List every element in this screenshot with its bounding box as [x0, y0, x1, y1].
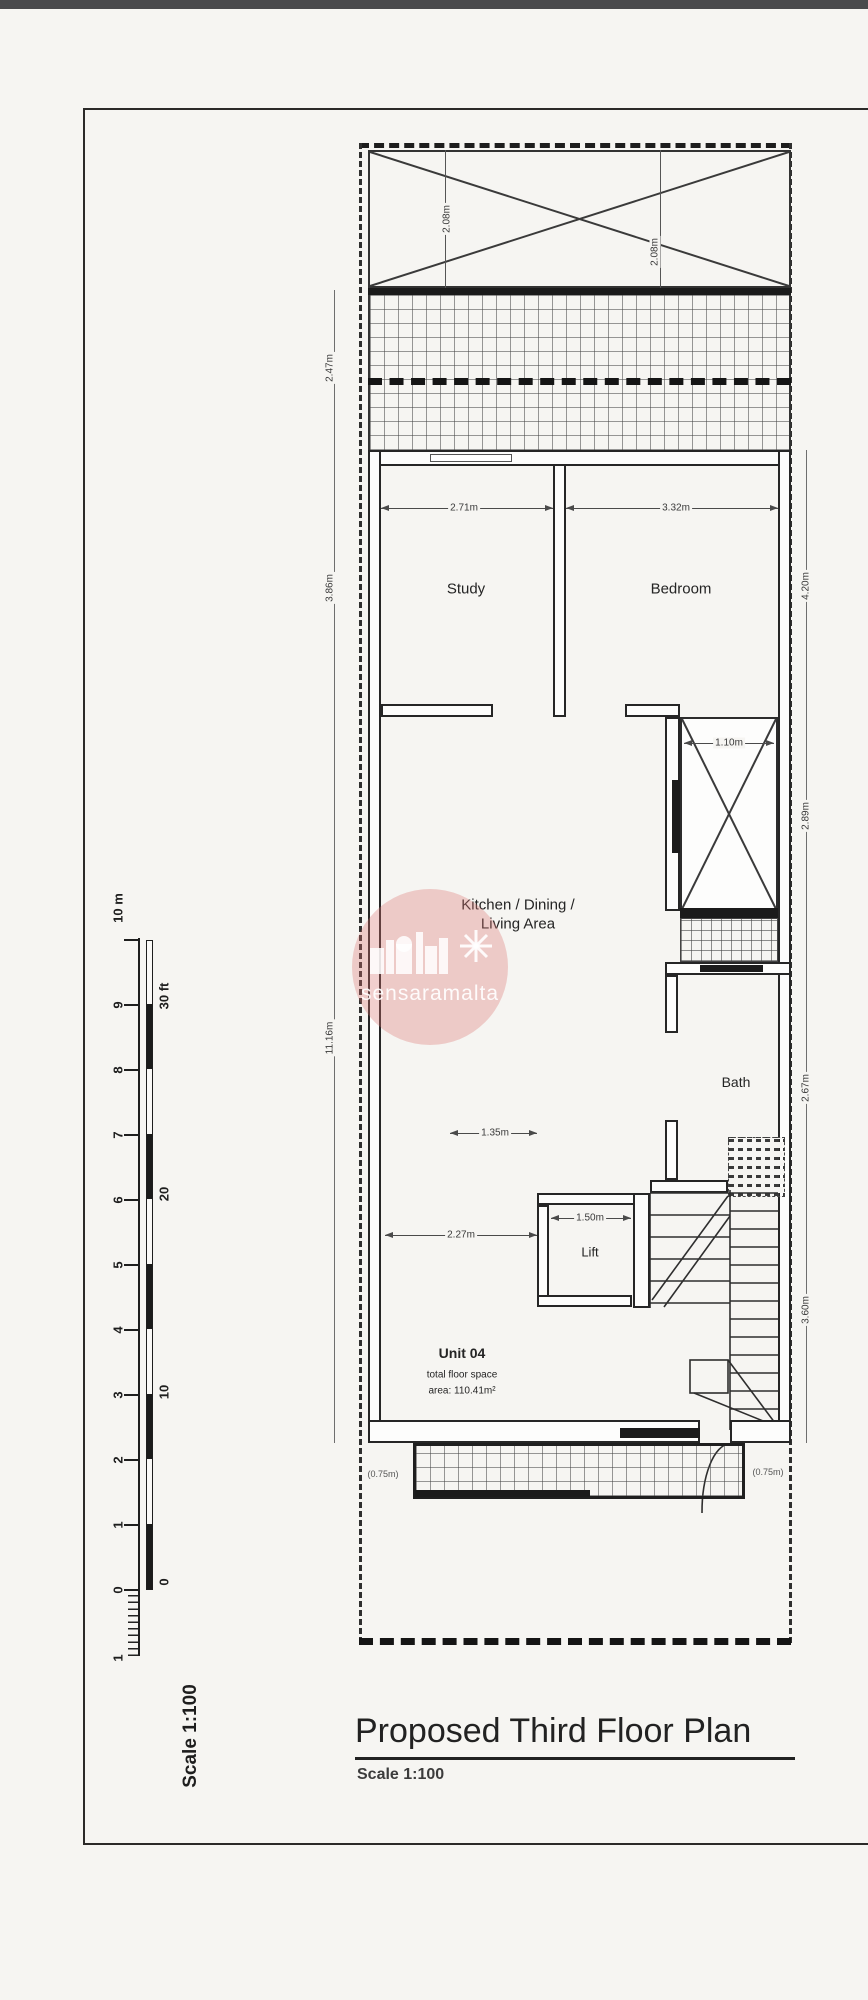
balcony-dim-left: (0.75m): [365, 1469, 400, 1479]
scalebar-number: 1: [111, 1521, 126, 1528]
wall-study-bedroom-divider: [553, 464, 566, 717]
terrace-dashed-line: [368, 378, 791, 385]
scalebar-alt-bar: [146, 940, 153, 1590]
shaft-bottom-bar: [680, 908, 778, 918]
wall-bedroom-bottom: [625, 704, 680, 717]
unit-floor-space-label: total floor space: [427, 1370, 498, 1381]
scalebar-tick: [124, 1264, 138, 1266]
wall-front-bottom-right: [730, 1420, 791, 1443]
study-dim: 2.71m: [448, 503, 480, 514]
upper-terrace-tiles: [368, 295, 791, 450]
sheet-title: Proposed Third Floor Plan: [355, 1712, 805, 1751]
right-stairs-dim: 3.60m: [801, 1294, 812, 1326]
frame-left: [83, 108, 85, 1845]
scalebar-comb: [128, 1590, 138, 1656]
lift-dim: 1.50m: [574, 1213, 606, 1224]
scalebar-meters-label: 10 m: [111, 893, 126, 923]
title-underline: [355, 1757, 795, 1760]
site-boundary-bottom: [359, 1638, 791, 1645]
wall-lift-right: [633, 1193, 650, 1308]
scalebar-tick: [124, 1199, 138, 1201]
scalebar-tick: [124, 1459, 138, 1461]
right-shaft-dim: 2.89m: [801, 800, 812, 832]
scalebar-ft-label: 10: [157, 1385, 172, 1399]
balcony-front-edge: [415, 1490, 590, 1497]
wall-bath-left-lower: [665, 1120, 678, 1180]
left-study-dim: 3.86m: [325, 572, 336, 604]
scalebar-ft-label: 20: [157, 1187, 172, 1201]
scalebar-tick: [124, 1329, 138, 1331]
bedroom-dim: 3.32m: [660, 503, 692, 514]
photo-top-strip: [0, 0, 868, 9]
frame-bottom: [83, 1843, 868, 1845]
bath-window-bar: [700, 965, 763, 972]
scalebar-number: 2: [111, 1456, 126, 1463]
wall-right: [778, 450, 791, 1443]
scalebar-tick: [124, 1069, 138, 1071]
room-label-bedroom: Bedroom: [651, 581, 712, 598]
unit-name: Unit 04: [439, 1345, 486, 1361]
rear-window-bar: [620, 1428, 700, 1438]
shaft-door-panel: [672, 780, 680, 853]
scalebar-number: 0: [111, 1586, 126, 1593]
balcony-dim-right: (0.75m): [750, 1467, 785, 1477]
watermark-skyline-icon: [368, 918, 498, 974]
wall-lift-bottom: [537, 1295, 632, 1307]
room-label-study: Study: [447, 581, 485, 598]
scalebar-tick: [124, 1524, 138, 1526]
room-label-lift: Lift: [581, 1245, 598, 1260]
shower-hatch: [728, 1137, 785, 1197]
scalebar-number: 3: [111, 1391, 126, 1398]
roof-dim-left: 2.08m: [442, 203, 453, 235]
staircase: [650, 1190, 778, 1430]
scalebar-tick: [124, 1004, 138, 1006]
wall-lift-left: [537, 1205, 549, 1297]
right-bedroom-dim: 4.20m: [801, 570, 812, 602]
left-kitchen-dim: 11.16m: [325, 1020, 336, 1057]
scalebar-number: 1: [111, 1654, 126, 1661]
scalebar-rotated-title: Scale 1:100: [180, 1684, 202, 1788]
left-terrace-dim: 2.47m: [325, 352, 336, 384]
sheet-scale: Scale 1:100: [357, 1766, 444, 1784]
wall-study-bottom: [381, 704, 493, 717]
scalebar-number: 4: [111, 1326, 126, 1333]
right-bath-dim: 2.67m: [801, 1072, 812, 1104]
room-label-bath: Bath: [722, 1074, 751, 1090]
scalebar-main-line: [138, 938, 140, 1656]
front-window: [430, 454, 512, 462]
roof-dim-right: 2.08m: [650, 236, 661, 268]
terrace-edge-bar: [368, 288, 791, 295]
shaft-hatch-strip: [680, 918, 778, 962]
scalebar-tick: [124, 1134, 138, 1136]
floor-plan-sheet: 2.08m 2.08m 1.10m: [0, 0, 868, 2000]
scalebar-number: 8: [111, 1066, 126, 1073]
roof-void-cross: [368, 150, 791, 288]
scalebar-number: 9: [111, 1001, 126, 1008]
wall-bath-left-upper: [665, 975, 678, 1033]
scalebar-ft-label: 0: [157, 1578, 172, 1585]
unit-area: area: 110.41m²: [428, 1386, 495, 1397]
corridor-dim: 1.35m: [479, 1128, 511, 1139]
kitchen-dim: 2.27m: [445, 1230, 477, 1241]
dim-chain-left: [334, 290, 335, 1443]
watermark-text: sensaramalta: [361, 982, 499, 1006]
scalebar-number: 6: [111, 1196, 126, 1203]
scalebar-number: 7: [111, 1131, 126, 1138]
scalebar-ft-label: 30 ft: [157, 983, 172, 1010]
site-boundary-top: [359, 143, 791, 148]
frame-top: [83, 108, 868, 110]
shaft-dim: 1.10m: [713, 738, 745, 749]
site-boundary-left: [359, 143, 362, 1643]
scalebar-tick: [124, 939, 138, 941]
scalebar-number: 5: [111, 1261, 126, 1268]
scalebar-tick: [124, 1394, 138, 1396]
